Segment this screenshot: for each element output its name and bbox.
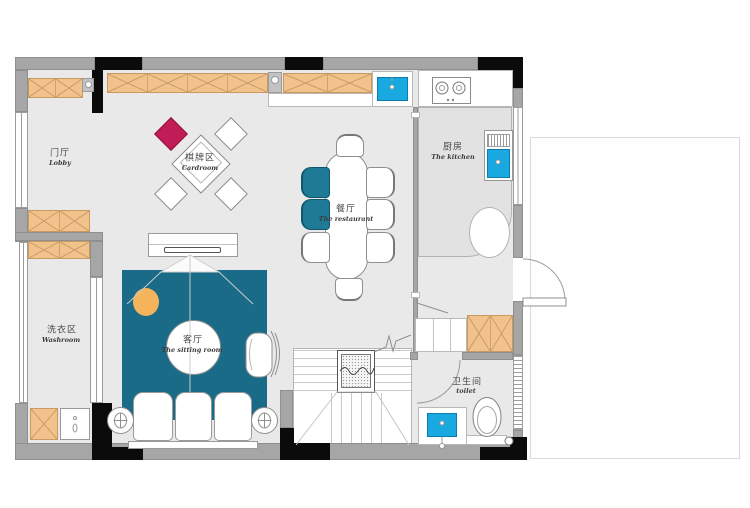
toilet-shelf (466, 435, 507, 445)
wall-dining-kitchen (413, 107, 418, 353)
wall-lobby-washroom (15, 232, 103, 241)
dining-chair-right-3 (366, 232, 395, 263)
dining-sink (377, 77, 408, 101)
stair-planter-fill (341, 354, 371, 388)
door-pivot-lobby (82, 78, 94, 92)
cabinet-north-2 (283, 73, 372, 93)
column-top-1 (95, 57, 142, 70)
column-top-2 (285, 57, 323, 70)
terrace-area (530, 137, 740, 459)
kitchen-label-en: The kitchen (431, 153, 474, 161)
column-toilet-v (510, 437, 527, 460)
wall-toilet-top-right (462, 352, 513, 360)
wall-top-3 (323, 57, 478, 70)
wall-washroom-right-upper (90, 241, 103, 277)
dining-chair-top (336, 134, 364, 157)
sofa-base (128, 441, 258, 449)
wall-top-2 (142, 57, 285, 70)
sofa-cushion-2 (175, 392, 212, 441)
cabinet-lobby-low-1 (28, 210, 90, 232)
window-toilet-right (513, 355, 523, 430)
column-stair-h (294, 443, 330, 460)
toilet-sink (427, 413, 457, 437)
dining-chair-left-3 (301, 232, 330, 263)
door-pivot-north (268, 72, 282, 93)
window-kitchen-right (513, 107, 523, 205)
side-table-left (107, 407, 134, 434)
side-table-right (251, 407, 278, 434)
kitchen-sink (487, 149, 510, 178)
cabinet-lobby-top (28, 78, 83, 98)
toilet-label-en: toilet (456, 387, 475, 395)
cabinet-washroom-top (28, 241, 90, 259)
wall-stair-left (280, 390, 293, 428)
window-lobby-left (15, 112, 28, 208)
dining-chair-right-1 (366, 167, 395, 198)
cardroom-label-zh: 棋牌区 (185, 151, 215, 164)
column-stair-v (280, 428, 294, 460)
toilet-label-zh: 卫生间 (452, 375, 482, 388)
wall-left-1 (15, 70, 28, 112)
kitchen-drainboard (487, 134, 510, 147)
tv (164, 247, 221, 253)
wall-joint-lower (411, 292, 420, 298)
wall-right-mid-1 (513, 205, 523, 258)
tv-cabinet (148, 233, 238, 257)
cardroom-label-en: Cardroom (182, 164, 218, 172)
sofa-cushion-3 (214, 392, 252, 441)
lobby-label-en: Lobby (49, 159, 71, 167)
kitchen-label-zh: 厨房 (443, 140, 463, 153)
wall-joint-upper (411, 112, 420, 118)
washroom-basin-unit (60, 408, 90, 440)
restaurant-label-en: The restaurant (319, 215, 374, 223)
glass-partition-washroom (90, 277, 103, 403)
sofa-cushion-1 (133, 392, 173, 441)
dining-chair-bottom (335, 278, 363, 301)
hall-cabinet (415, 318, 467, 352)
sitting-room-label-zh: 客厅 (183, 333, 203, 346)
pouf (133, 288, 159, 316)
cabinet-hall (467, 315, 513, 352)
column-toilet-h (480, 447, 510, 460)
floor-plan: 门厅 Lobby 棋牌区 Cardroom 餐厅 The restaurant … (0, 0, 750, 508)
restaurant-label-zh: 餐厅 (336, 202, 356, 215)
lobby-label-zh: 门厅 (50, 146, 70, 159)
washroom-label-en: Washroom (42, 336, 80, 344)
wall-right-upper (513, 88, 523, 108)
washing-machine (30, 408, 58, 440)
wall-left-3 (15, 403, 28, 444)
wall-top-1 (15, 57, 95, 70)
cabinet-north-1 (107, 73, 268, 93)
sitting-room-label-en: The sitting room (161, 346, 222, 354)
wall-toilet-top-left (410, 352, 418, 360)
cooktop (432, 77, 471, 104)
stair-treads-lower (331, 393, 383, 445)
dining-chair-left-1 (301, 167, 330, 198)
kitchen-counter-round-end (469, 207, 510, 258)
window-washroom-left (19, 242, 28, 403)
wall-right-mid-2 (513, 301, 523, 355)
washroom-label-zh: 洗衣区 (47, 323, 77, 336)
